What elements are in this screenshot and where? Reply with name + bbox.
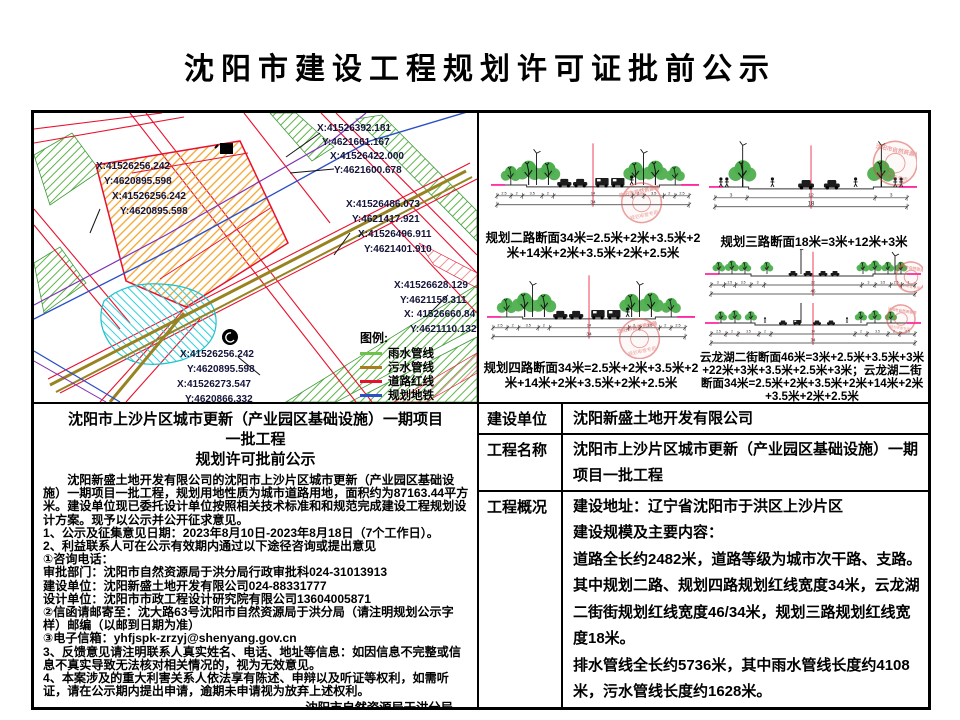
coordinate-label: X:41526256.242 — [96, 161, 170, 172]
legend-item: 污水管线 — [360, 360, 434, 374]
map-marker-icon — [220, 143, 233, 154]
notice-paragraph: 沈阳新盛土地开发有限公司的沈阳市上沙片区城市更新（产业园区基础设施）一期项目一批… — [43, 474, 469, 527]
svg-text:18: 18 — [808, 201, 815, 207]
legend-item: 规划地铁 — [360, 388, 434, 402]
info-row-label: 工程名称 — [479, 435, 563, 490]
legend-swatch — [360, 366, 382, 369]
svg-text:14: 14 — [591, 191, 595, 195]
notice-heading: 沈阳市上沙片区城市更新（产业园区基础设施）一期项目一批工程 规划许可批前公示 — [34, 410, 477, 470]
notice-line: 建设单位：沈阳新盛土地开发有限公司024-88331777 — [43, 580, 469, 593]
notice-line: ②信函请邮寄至：沈大路63号沈阳市自然资源局于洪分局（请注明规划公示字样）邮编（… — [43, 606, 469, 632]
coordinate-label: X:41526273.547 — [177, 379, 251, 390]
svg-text:3.5: 3.5 — [880, 281, 885, 285]
svg-text:2: 2 — [731, 330, 733, 334]
svg-text:34: 34 — [590, 199, 596, 205]
svg-text:2: 2 — [668, 191, 670, 195]
legend-label: 规划地铁 — [388, 387, 434, 403]
content-frame: X:41526392.181Y:4621661.167X:41526422.00… — [31, 110, 931, 710]
svg-text:22: 22 — [811, 281, 815, 285]
coordinate-label: Y:4621417.921 — [352, 214, 420, 225]
cross-section-road4-diagram: 2.523.521423.522.534沈阳市自然资源局规划审查专用 — [487, 263, 695, 359]
svg-text:2: 2 — [547, 191, 549, 195]
info-value-line: 建设地址：辽宁省沈阳市于洪区上沙片区 — [573, 494, 922, 521]
info-value-line: 沈阳市上沙片区城市更新（产业园区基础设施）一期项目一批工程 — [573, 437, 922, 490]
coordinate-label: Y:4620895.598 — [120, 206, 188, 217]
notice-line: 审批部门：沈阳市自然资源局于洪分局行政审批科024-31013913 — [43, 566, 469, 579]
legend-item: 雨水管线 — [360, 346, 434, 360]
info-row-value: 沈阳新盛土地开发有限公司 — [563, 404, 928, 433]
info-value-line: 道路全长约2482米，道路等级为城市次干路、支路。其中规划二路、规划四路规划红线… — [573, 547, 922, 653]
info-value-line: 沈阳新盛土地开发有限公司 — [573, 406, 922, 433]
notice-body: 沈阳新盛土地开发有限公司的沈阳市上沙片区城市更新（产业园区基础设施）一期项目一批… — [34, 470, 477, 707]
road-cross-sections: 2.523.521423.522.534沈阳市自然资源局规划审查专用 31231… — [479, 113, 928, 404]
info-row-value: 沈阳市上沙片区城市更新（产业园区基础设施）一期项目一批工程 — [563, 435, 928, 490]
notice-line: ③电子信箱：yhfjspk-zrzyj@shenyang.gov.cn — [43, 632, 469, 645]
svg-text:2: 2 — [516, 191, 518, 195]
coordinate-label: X:41526486.073 — [346, 199, 420, 210]
svg-text:3: 3 — [717, 281, 719, 285]
cross-section-road3-caption: 规划三路断面18米=3米+12米+3米 — [707, 235, 921, 250]
legend-item: 道路红线 — [360, 374, 434, 388]
info-value-line: 建设规模及主要内容： — [573, 520, 922, 547]
coordinate-label: Y:4621600.678 — [334, 165, 402, 176]
svg-text:3: 3 — [757, 281, 759, 285]
notice-heading-line2: 规划许可批前公示 — [195, 451, 315, 468]
public-notice-text: 沈阳市上沙片区城市更新（产业园区基础设施）一期项目一批工程 规划许可批前公示 沈… — [34, 404, 479, 707]
svg-text:3: 3 — [890, 192, 893, 198]
svg-text:14: 14 — [587, 323, 591, 327]
coordinate-label: X:41526256.242 — [180, 349, 254, 360]
coordinate-label: Y:4621661.167 — [322, 137, 390, 148]
coordinate-label: Y:4621401.910 — [364, 244, 432, 255]
legend-swatch — [360, 380, 382, 383]
notice-line: 3、反馈意见请注明联系人真实姓名、电话、地址等信息：如因信息不完整或信息不真实导… — [43, 646, 469, 672]
info-row: 工程名称沈阳市上沙片区城市更新（产业园区基础设施）一期项目一批工程 — [479, 435, 928, 492]
map-legend: 图例: 雨水管线污水管线道路红线规划地铁 — [360, 329, 434, 402]
info-row-label: 建设单位 — [479, 404, 563, 433]
svg-text:2.5: 2.5 — [716, 330, 721, 334]
notice-signature: 沈阳市自然资源局于洪分局2023年8月10日 — [43, 701, 469, 707]
cross-section-road3-diagram: 312318沈阳市自然资源局规划审查专用 — [709, 133, 917, 229]
info-value-line: 排水管线全长约5736米，其中雨水管线长度约4108米，污水管线长度约1628米… — [573, 653, 922, 706]
notice-heading-line1: 沈阳市上沙片区城市更新（产业园区基础设施）一期项目一批工程 — [68, 411, 443, 448]
coordinate-label: X:41526422.000 — [330, 151, 404, 162]
svg-text:2: 2 — [764, 330, 766, 334]
coordinate-label: X: 41526660.84 — [404, 309, 475, 320]
svg-text:46: 46 — [811, 289, 816, 294]
info-row-label: 工程概况 — [479, 492, 563, 708]
svg-text:3.5: 3.5 — [875, 330, 880, 334]
cross-section-road2-diagram: 2.523.521423.522.534沈阳市自然资源局规划审查专用 — [491, 129, 699, 229]
coordinate-label: Y:4620866.332 — [185, 394, 253, 404]
svg-text:2: 2 — [543, 323, 545, 327]
svg-text:3: 3 — [867, 281, 869, 285]
info-row: 建设单位沈阳新盛土地开发有限公司 — [479, 404, 928, 435]
svg-text:3.5: 3.5 — [526, 323, 531, 327]
svg-text:14: 14 — [811, 330, 815, 334]
cross-section-road4-caption: 规划四路断面34米=2.5米+2米+3.5米+2米+14米+2米+3.5米+2米… — [481, 361, 701, 390]
coordinate-label: Y:4621159.311 — [400, 295, 467, 306]
svg-text:3.5: 3.5 — [741, 281, 746, 285]
site-plan-map: X:41526392.181Y:4621661.167X:41526422.00… — [34, 113, 479, 404]
coordinate-label: Y:4620895.598 — [104, 176, 172, 187]
svg-text:34: 34 — [586, 331, 592, 337]
project-info-table: 建设单位沈阳新盛土地开发有限公司工程名称沈阳市上沙片区城市更新（产业园区基础设施… — [479, 404, 928, 707]
svg-text:2.5: 2.5 — [679, 191, 684, 195]
legend-swatch — [360, 352, 382, 355]
coordinate-label: X:41526256.242 — [112, 191, 186, 202]
svg-text:3.5: 3.5 — [746, 330, 751, 334]
svg-text:2.5: 2.5 — [727, 281, 732, 285]
info-value-line: 工程内容主要包括道路工程、排水工程等。 — [573, 706, 922, 708]
cross-section-yunlonghu34-diagram: 2.523.521423.522.534沈阳市自然资源局规划审查专用 — [703, 303, 923, 350]
info-row-value: 建设地址：辽宁省沈阳市于洪区上沙片区建设规模及主要内容：道路全长约2482米，道… — [563, 492, 928, 708]
info-row: 工程概况建设地址：辽宁省沈阳市于洪区上沙片区建设规模及主要内容：道路全长约248… — [479, 492, 928, 708]
svg-text:12: 12 — [808, 192, 814, 198]
svg-text:3: 3 — [730, 192, 733, 198]
legend-swatch — [360, 394, 382, 397]
svg-text:3.5: 3.5 — [530, 191, 535, 195]
cross-section-yunlonghu46-diagram: 32.53.532233.52.5346沈阳市自然资源局规划审查专用 — [703, 249, 923, 302]
coordinate-label: X:41526496.911 — [358, 229, 431, 240]
svg-text:2: 2 — [512, 323, 514, 327]
coordinate-label: X:41526392.181 — [317, 123, 391, 134]
svg-text:2.5: 2.5 — [501, 191, 506, 195]
svg-text:34: 34 — [811, 338, 816, 343]
cross-section-yunlonghu-caption: 云龙湖二街断面46米=3米+2.5米+3.5米+3米+22米+3米+3.5米+2… — [699, 351, 925, 403]
svg-text:2: 2 — [860, 330, 862, 334]
cross-section-road2-caption: 规划二路断面34米=2.5米+2米+3.5米+2米+14米+2米+3.5米+2米… — [483, 231, 703, 260]
svg-text:2.5: 2.5 — [675, 323, 680, 327]
legend-title: 图例: — [360, 329, 434, 346]
coordinate-label: X:41526628.129 — [394, 280, 468, 291]
notice-line: 4、本案涉及的重大利害关系人依法享有陈述、申辩以及听证等权利，如需听证，请在公示… — [43, 672, 469, 698]
svg-text:2: 2 — [664, 323, 666, 327]
page-title: 沈阳市建设工程规划许可证批前公示 — [0, 44, 960, 88]
svg-text:2.5: 2.5 — [497, 323, 502, 327]
coordinate-label: Y:4620895.598 — [187, 364, 255, 375]
signature-line: 沈阳市自然资源局于洪分局 — [43, 701, 453, 707]
